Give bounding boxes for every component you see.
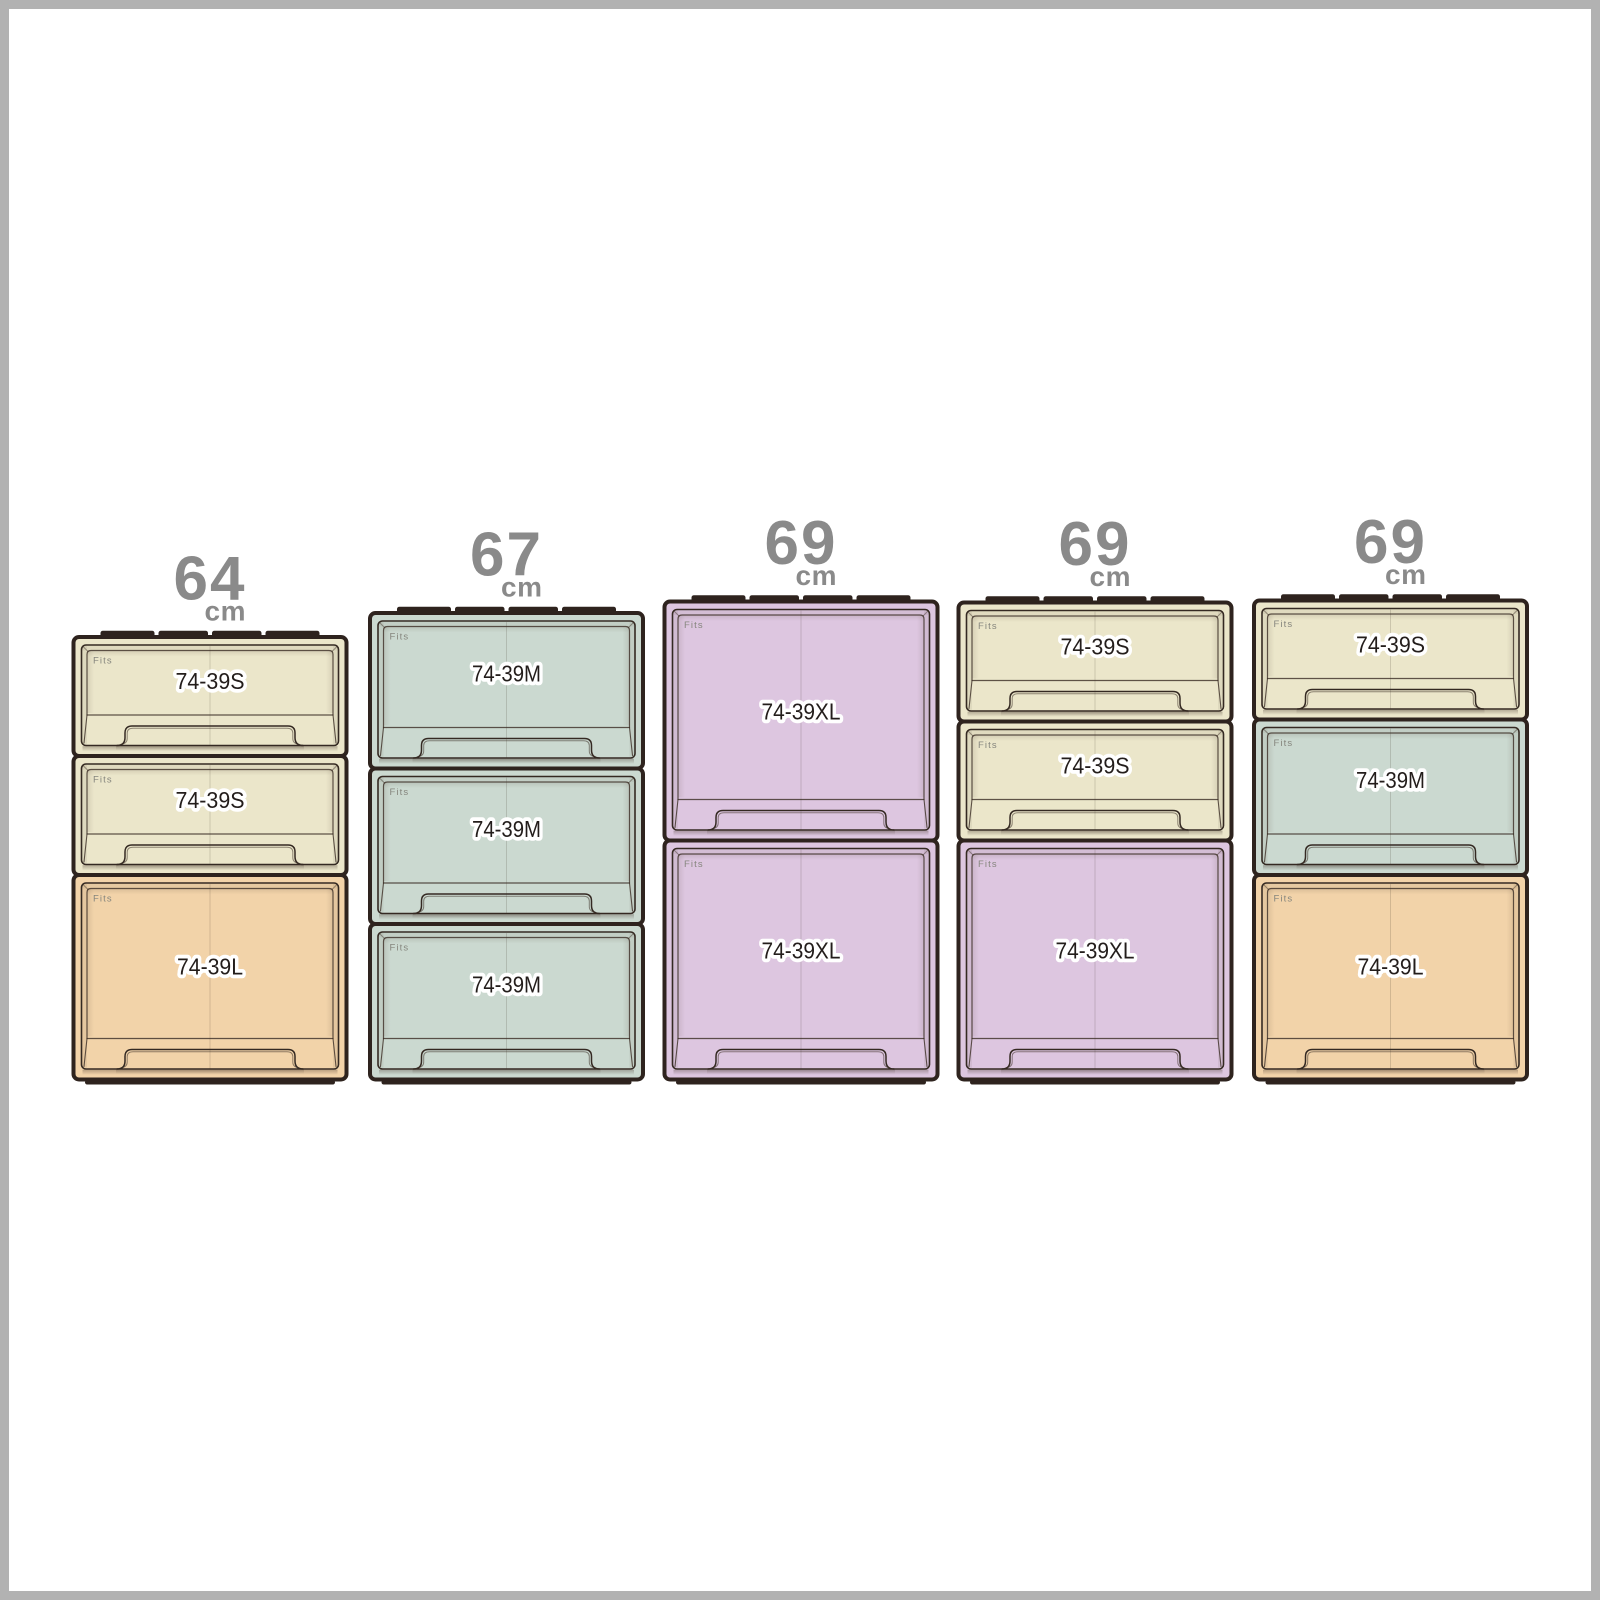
svg-text:74-39XL: 74-39XL [762,938,841,964]
svg-text:74-39M: 74-39M [1356,767,1425,793]
svg-text:74-39M: 74-39M [472,816,541,842]
svg-text:Fits: Fits [978,621,998,632]
svg-text:74-39XL: 74-39XL [1056,938,1135,964]
svg-text:Fits: Fits [684,859,704,870]
svg-text:74-39S: 74-39S [1061,633,1130,659]
svg-text:74-39S: 74-39S [176,668,245,694]
svg-text:Fits: Fits [1274,738,1294,749]
svg-text:Fits: Fits [93,775,113,786]
svg-text:69: 69 [1354,508,1427,577]
svg-text:74-39S: 74-39S [1061,752,1130,778]
svg-text:Fits: Fits [93,656,113,667]
svg-text:74-39M: 74-39M [472,972,541,998]
svg-text:Fits: Fits [1274,894,1294,905]
svg-text:Fits: Fits [390,943,410,954]
svg-text:Fits: Fits [1274,619,1294,630]
svg-text:Fits: Fits [93,894,113,905]
svg-text:69: 69 [765,509,838,578]
svg-text:69: 69 [1059,510,1132,579]
svg-text:74-39L: 74-39L [177,954,243,980]
svg-text:67: 67 [470,521,543,590]
svg-text:74-39XL: 74-39XL [762,699,841,725]
svg-text:74-39M: 74-39M [472,661,541,687]
svg-text:Fits: Fits [684,620,704,631]
svg-text:74-39S: 74-39S [176,787,245,813]
svg-text:Fits: Fits [390,787,410,798]
svg-text:Fits: Fits [978,740,998,751]
svg-text:Fits: Fits [390,632,410,643]
svg-text:74-39S: 74-39S [1356,631,1425,657]
svg-text:64: 64 [174,545,247,614]
svg-text:Fits: Fits [978,859,998,870]
svg-text:74-39L: 74-39L [1358,954,1424,980]
